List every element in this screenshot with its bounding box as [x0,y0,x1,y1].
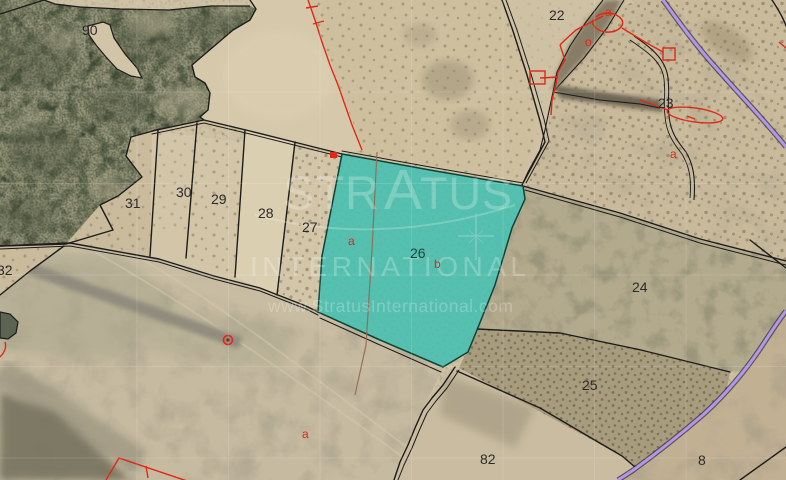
svg-text:82: 82 [480,451,496,467]
svg-text:a: a [302,427,309,441]
svg-text:b: b [434,257,441,271]
svg-text:25: 25 [582,377,598,393]
svg-text:8: 8 [698,452,706,468]
svg-text:o: o [585,35,592,49]
svg-text:INTERNATIONAL: INTERNATIONAL [250,251,530,282]
svg-text:a: a [348,234,355,248]
svg-text:23: 23 [658,95,674,111]
svg-text:32: 32 [0,262,13,278]
svg-text:22: 22 [549,7,565,23]
svg-text:90: 90 [82,22,98,38]
svg-text:30: 30 [176,184,192,200]
svg-text:28: 28 [258,205,274,221]
svg-text:STR: STR [283,166,380,219]
svg-text:A: A [384,158,422,222]
svg-text:24: 24 [632,279,648,295]
svg-text:29: 29 [211,191,227,207]
svg-text:a: a [670,147,677,161]
svg-text:31: 31 [125,195,141,211]
svg-text:27: 27 [302,219,318,235]
svg-text:www.StratusInternational.com: www.StratusInternational.com [267,296,514,316]
svg-text:TUS: TUS [420,168,513,219]
svg-text:26: 26 [410,245,426,261]
svg-text:a: a [605,5,612,19]
